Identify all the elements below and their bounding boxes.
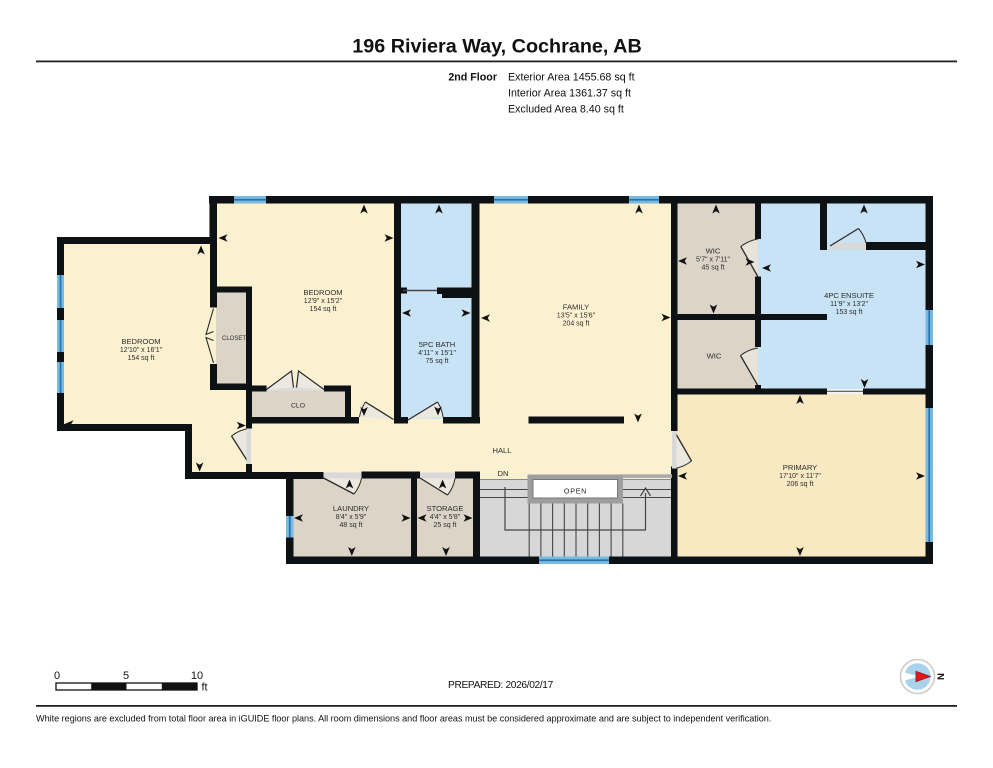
svg-text:DN: DN [498,469,509,478]
svg-text:153 sq ft: 153 sq ft [836,309,863,316]
svg-text:13'5" x 15'6": 13'5" x 15'6" [557,313,596,320]
svg-text:0: 0 [54,670,60,682]
svg-text:11'9" x 13'2": 11'9" x 13'2" [830,301,868,308]
svg-text:LAUNDRY: LAUNDRY [333,504,369,513]
svg-text:Excluded Area 8.40 sq ft: Excluded Area 8.40 sq ft [508,104,624,116]
svg-text:10: 10 [191,670,203,682]
svg-text:4'11" x 15'1": 4'11" x 15'1" [418,350,456,357]
svg-text:BEDROOM: BEDROOM [121,337,160,346]
svg-text:48 sq ft: 48 sq ft [340,522,363,529]
svg-text:25 sq ft: 25 sq ft [434,522,457,529]
svg-text:5PC BATH: 5PC BATH [419,340,456,349]
svg-text:196 Riviera Way, Cochrane, AB: 196 Riviera Way, Cochrane, AB [352,36,642,58]
svg-text:WIC: WIC [706,247,721,256]
svg-text:5: 5 [123,670,129,682]
svg-text:ft: ft [202,682,208,694]
svg-text:STORAGE: STORAGE [427,504,464,513]
svg-text:12'10" x 16'1": 12'10" x 16'1" [120,347,163,354]
svg-text:FAMILY: FAMILY [563,303,589,312]
svg-text:WIC: WIC [707,352,722,361]
svg-text:Interior Area 1361.37 sq ft: Interior Area 1361.37 sq ft [508,88,631,100]
svg-text:5'7" x 7'11": 5'7" x 7'11" [696,257,730,264]
svg-text:CLO: CLO [291,403,305,410]
svg-text:204 sq ft: 204 sq ft [563,321,590,328]
svg-text:2nd Floor: 2nd Floor [448,72,497,84]
svg-text:HALL: HALL [493,446,512,455]
svg-text:4PC ENSUITE: 4PC ENSUITE [824,291,874,300]
svg-text:154 sq ft: 154 sq ft [128,355,155,362]
svg-text:206 sq ft: 206 sq ft [787,481,814,488]
svg-text:4'4" x 5'8": 4'4" x 5'8" [430,514,461,521]
svg-text:154 sq ft: 154 sq ft [310,306,337,313]
svg-text:12'9" x 15'2": 12'9" x 15'2" [304,298,343,305]
svg-text:OPEN: OPEN [564,487,587,496]
svg-text:75 sq ft: 75 sq ft [426,358,449,365]
svg-text:N: N [935,673,946,680]
svg-text:CLOSET: CLOSET [222,336,246,342]
svg-text:17'10" x 11'7": 17'10" x 11'7" [779,473,821,480]
svg-text:White regions are excluded fro: White regions are excluded from total fl… [36,714,771,724]
svg-text:45 sq ft: 45 sq ft [702,265,725,272]
svg-text:Exterior Area 1455.68 sq ft: Exterior Area 1455.68 sq ft [508,72,635,84]
svg-text:PREPARED: 2026/02/17: PREPARED: 2026/02/17 [448,680,554,691]
svg-text:PRIMARY: PRIMARY [783,463,817,472]
svg-text:BEDROOM: BEDROOM [303,288,342,297]
svg-text:8'4" x 5'9": 8'4" x 5'9" [336,514,367,521]
